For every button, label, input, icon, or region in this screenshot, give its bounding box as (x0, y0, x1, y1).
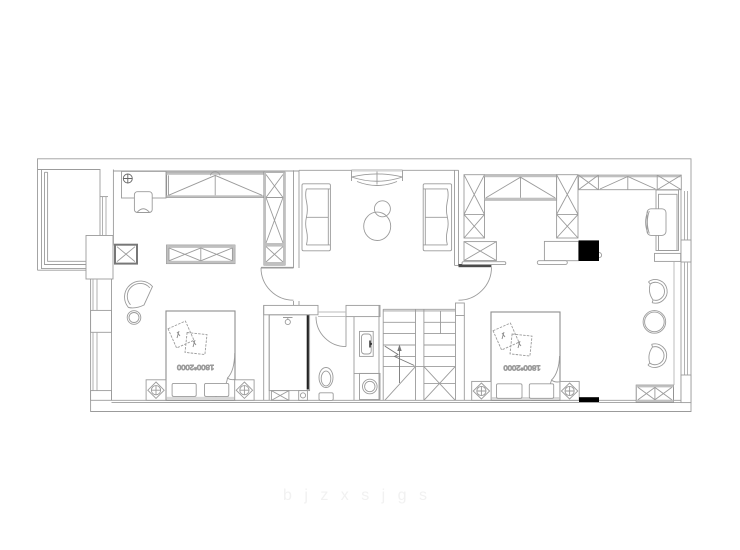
svg-text:b j z x s j g s: b j z x s j g s (283, 487, 431, 504)
svg-text:1800*2000: 1800*2000 (503, 364, 540, 373)
svg-text:1800*2000: 1800*2000 (177, 363, 214, 372)
